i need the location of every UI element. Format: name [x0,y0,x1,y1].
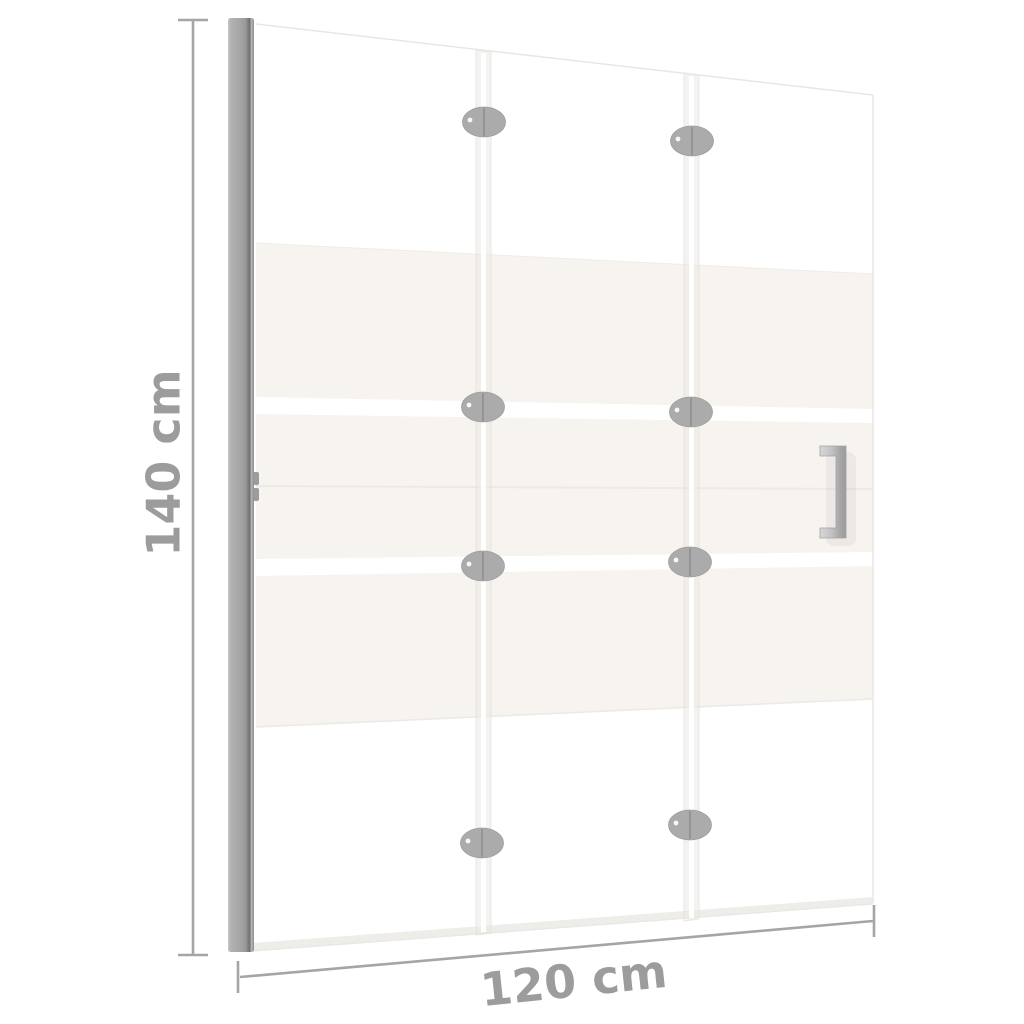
hinge [462,392,505,422]
shower-screen-product-image: 140 cm 120 cm [0,0,1024,1024]
glass-panels [253,24,873,951]
panel-seam-left [476,50,491,935]
hinge [462,551,505,581]
wall-profile-bar [228,18,259,952]
panel-seam-right [684,73,699,921]
hinge [669,810,712,840]
hinge [461,828,504,858]
height-dimension-label: 140 cm [137,369,191,556]
hinge [463,107,506,137]
shower-screen-diagram: 140 cm 120 cm [0,0,1024,1024]
hinge [669,547,712,577]
hinge [671,126,714,156]
hinge [670,397,713,427]
width-dimension-label: 120 cm [478,944,670,1017]
height-dimension: 140 cm [137,20,209,955]
